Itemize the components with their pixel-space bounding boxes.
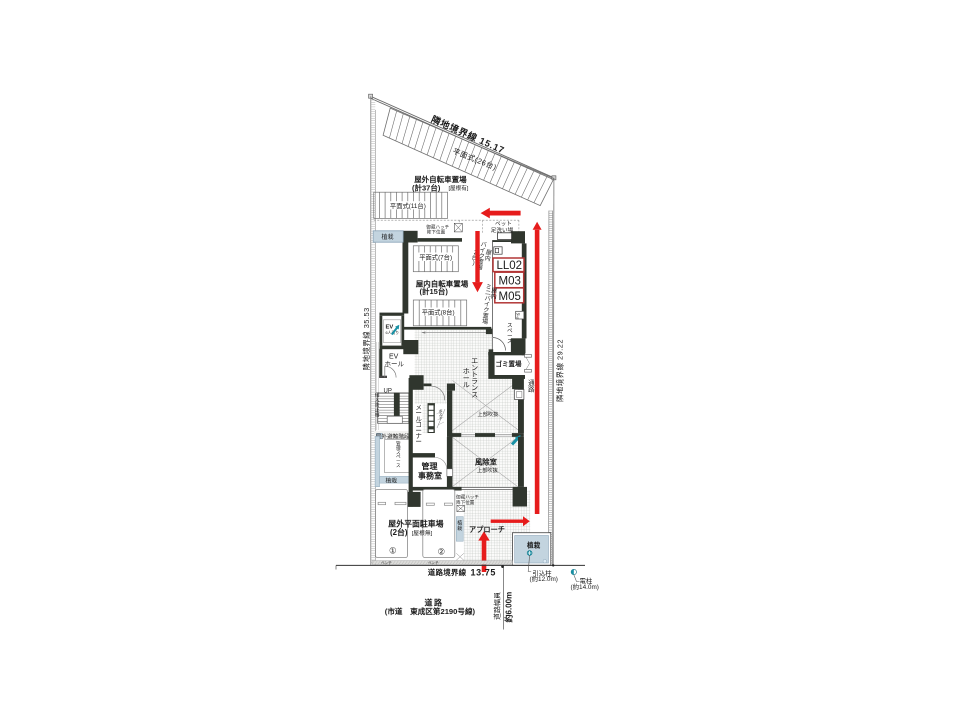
svg-text:植栽: 植栽: [526, 541, 541, 550]
svg-text:M03: M03: [499, 276, 521, 288]
svg-text:アプローチ: アプローチ: [469, 525, 505, 534]
svg-text:風除室: 風除室: [475, 457, 498, 466]
svg-text:①: ①: [389, 546, 397, 556]
svg-text:降下位置: 降下位置: [456, 499, 475, 506]
svg-text:(市道 東成区第2190号線): (市道 東成区第2190号線): [385, 606, 476, 616]
svg-text:管理スペース: 管理スペース: [396, 440, 401, 468]
svg-text:[屋根無]: [屋根無]: [412, 529, 433, 537]
svg-text:道路: 道路: [425, 597, 444, 607]
svg-text:13.75: 13.75: [471, 567, 497, 577]
svg-text:ベンチ: ベンチ: [428, 560, 439, 565]
svg-text:エントランス: エントランス: [471, 358, 478, 399]
svg-text:道路境界線: 道路境界線: [428, 567, 467, 577]
svg-text:EV: EV: [386, 325, 394, 331]
svg-text:植栽: 植栽: [382, 233, 394, 241]
svg-text:降下位置: 降下位置: [427, 229, 446, 236]
svg-text:6: 6: [517, 316, 519, 320]
svg-text:ポスト: ポスト: [439, 409, 443, 421]
svg-text:②: ②: [438, 547, 446, 557]
svg-text:平面式(8台): 平面式(8台): [422, 307, 455, 316]
svg-text:隣地境界線 29.22: 隣地境界線 29.22: [556, 339, 565, 402]
svg-text:上部吹抜: 上部吹抜: [478, 410, 500, 418]
svg-text:通路: 通路: [528, 378, 535, 394]
svg-text:ペット: ペット: [495, 221, 512, 228]
svg-text:(約14.0m): (約14.0m): [571, 582, 599, 591]
svg-text:ホール: ホール: [463, 368, 470, 390]
svg-text:(約12.0m): (約12.0m): [530, 574, 558, 583]
svg-text:EV: EV: [389, 353, 399, 360]
svg-text:(計15台): (計15台): [420, 286, 449, 296]
svg-text:植栽: 植栽: [457, 520, 462, 533]
svg-text:屋外自転車置場: 屋外自転車置場: [414, 174, 467, 184]
svg-text:(2台): (2台): [390, 527, 408, 537]
svg-text:上部吹抜: 上部吹抜: [477, 466, 499, 474]
svg-text:約6.00m: 約6.00m: [504, 592, 514, 623]
svg-text:隣地境界線 35.53: 隣地境界線 35.53: [362, 307, 371, 370]
svg-text:屋外平面駐車場: 屋外平面駐車場: [388, 519, 443, 529]
svg-text:[屋根有]: [屋根有]: [449, 184, 469, 192]
svg-text:ゴミ置場: ゴミ置場: [496, 359, 523, 368]
svg-text:植栽: 植栽: [386, 476, 398, 484]
svg-text:メールコーナー: メールコーナー: [415, 405, 422, 446]
svg-text:事務室: 事務室: [418, 471, 442, 481]
svg-text:侵入防止柵: 侵入防止柵: [375, 392, 380, 418]
svg-text:M05: M05: [499, 291, 521, 303]
svg-text:(計37台): (計37台): [412, 182, 441, 192]
svg-text:足洗い場: 足洗い場: [491, 226, 514, 234]
svg-text:平面式(11台): 平面式(11台): [390, 201, 426, 210]
svg-text:ベンチ: ベンチ: [381, 560, 392, 565]
svg-text:管理: 管理: [422, 461, 438, 471]
svg-text:UP: UP: [384, 388, 392, 394]
svg-text:平面式(7台): 平面式(7台): [419, 253, 452, 262]
svg-text:道路幅員: 道路幅員: [493, 592, 502, 620]
svg-text:LL02: LL02: [497, 260, 523, 272]
